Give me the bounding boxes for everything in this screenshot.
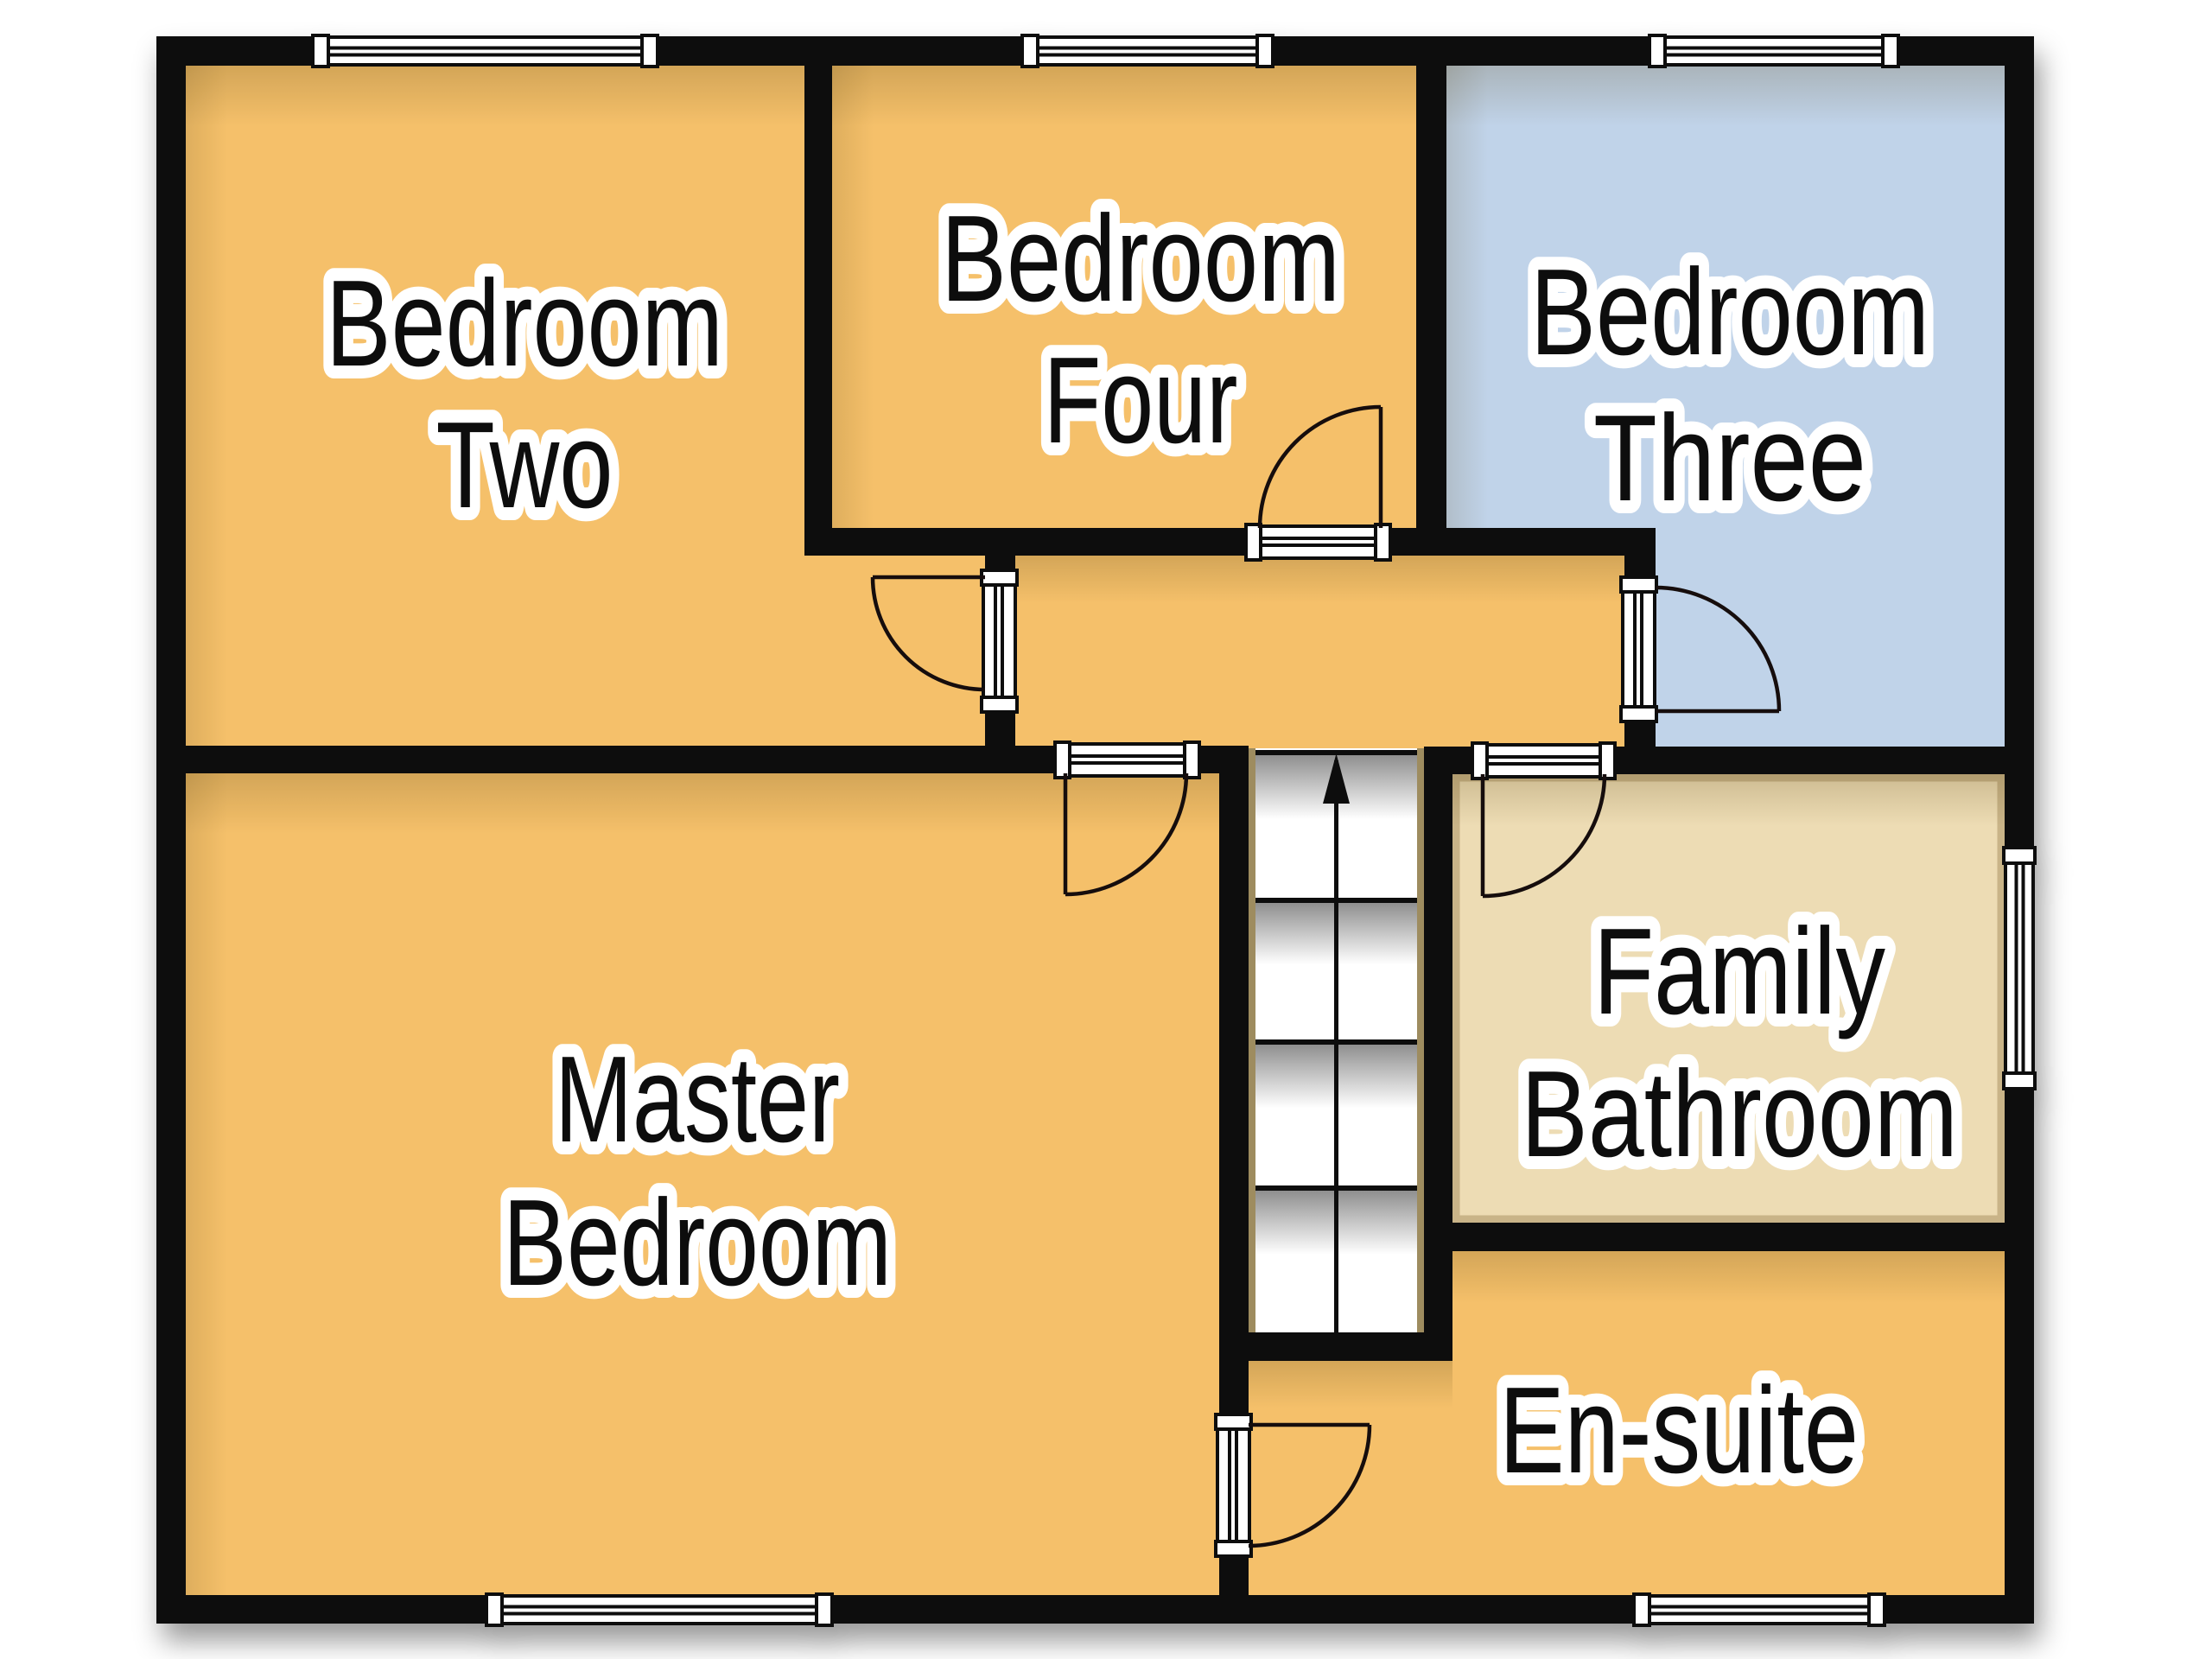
svg-text:Four: Four	[1044, 332, 1238, 469]
svg-text:En-suite: En-suite	[1499, 1362, 1859, 1499]
svg-text:Three: Three	[1593, 390, 1866, 527]
svg-text:Two: Two	[436, 397, 613, 534]
svg-text:Master: Master	[555, 1031, 840, 1168]
svg-text:Bedroom: Bedroom	[1530, 244, 1929, 381]
svg-text:Bedroom: Bedroom	[941, 190, 1340, 327]
svg-text:Bedroom: Bedroom	[326, 255, 723, 392]
svg-text:Bedroom: Bedroom	[503, 1174, 892, 1312]
svg-text:Bathroom: Bathroom	[1521, 1046, 1958, 1183]
svg-text:Family: Family	[1593, 903, 1885, 1040]
